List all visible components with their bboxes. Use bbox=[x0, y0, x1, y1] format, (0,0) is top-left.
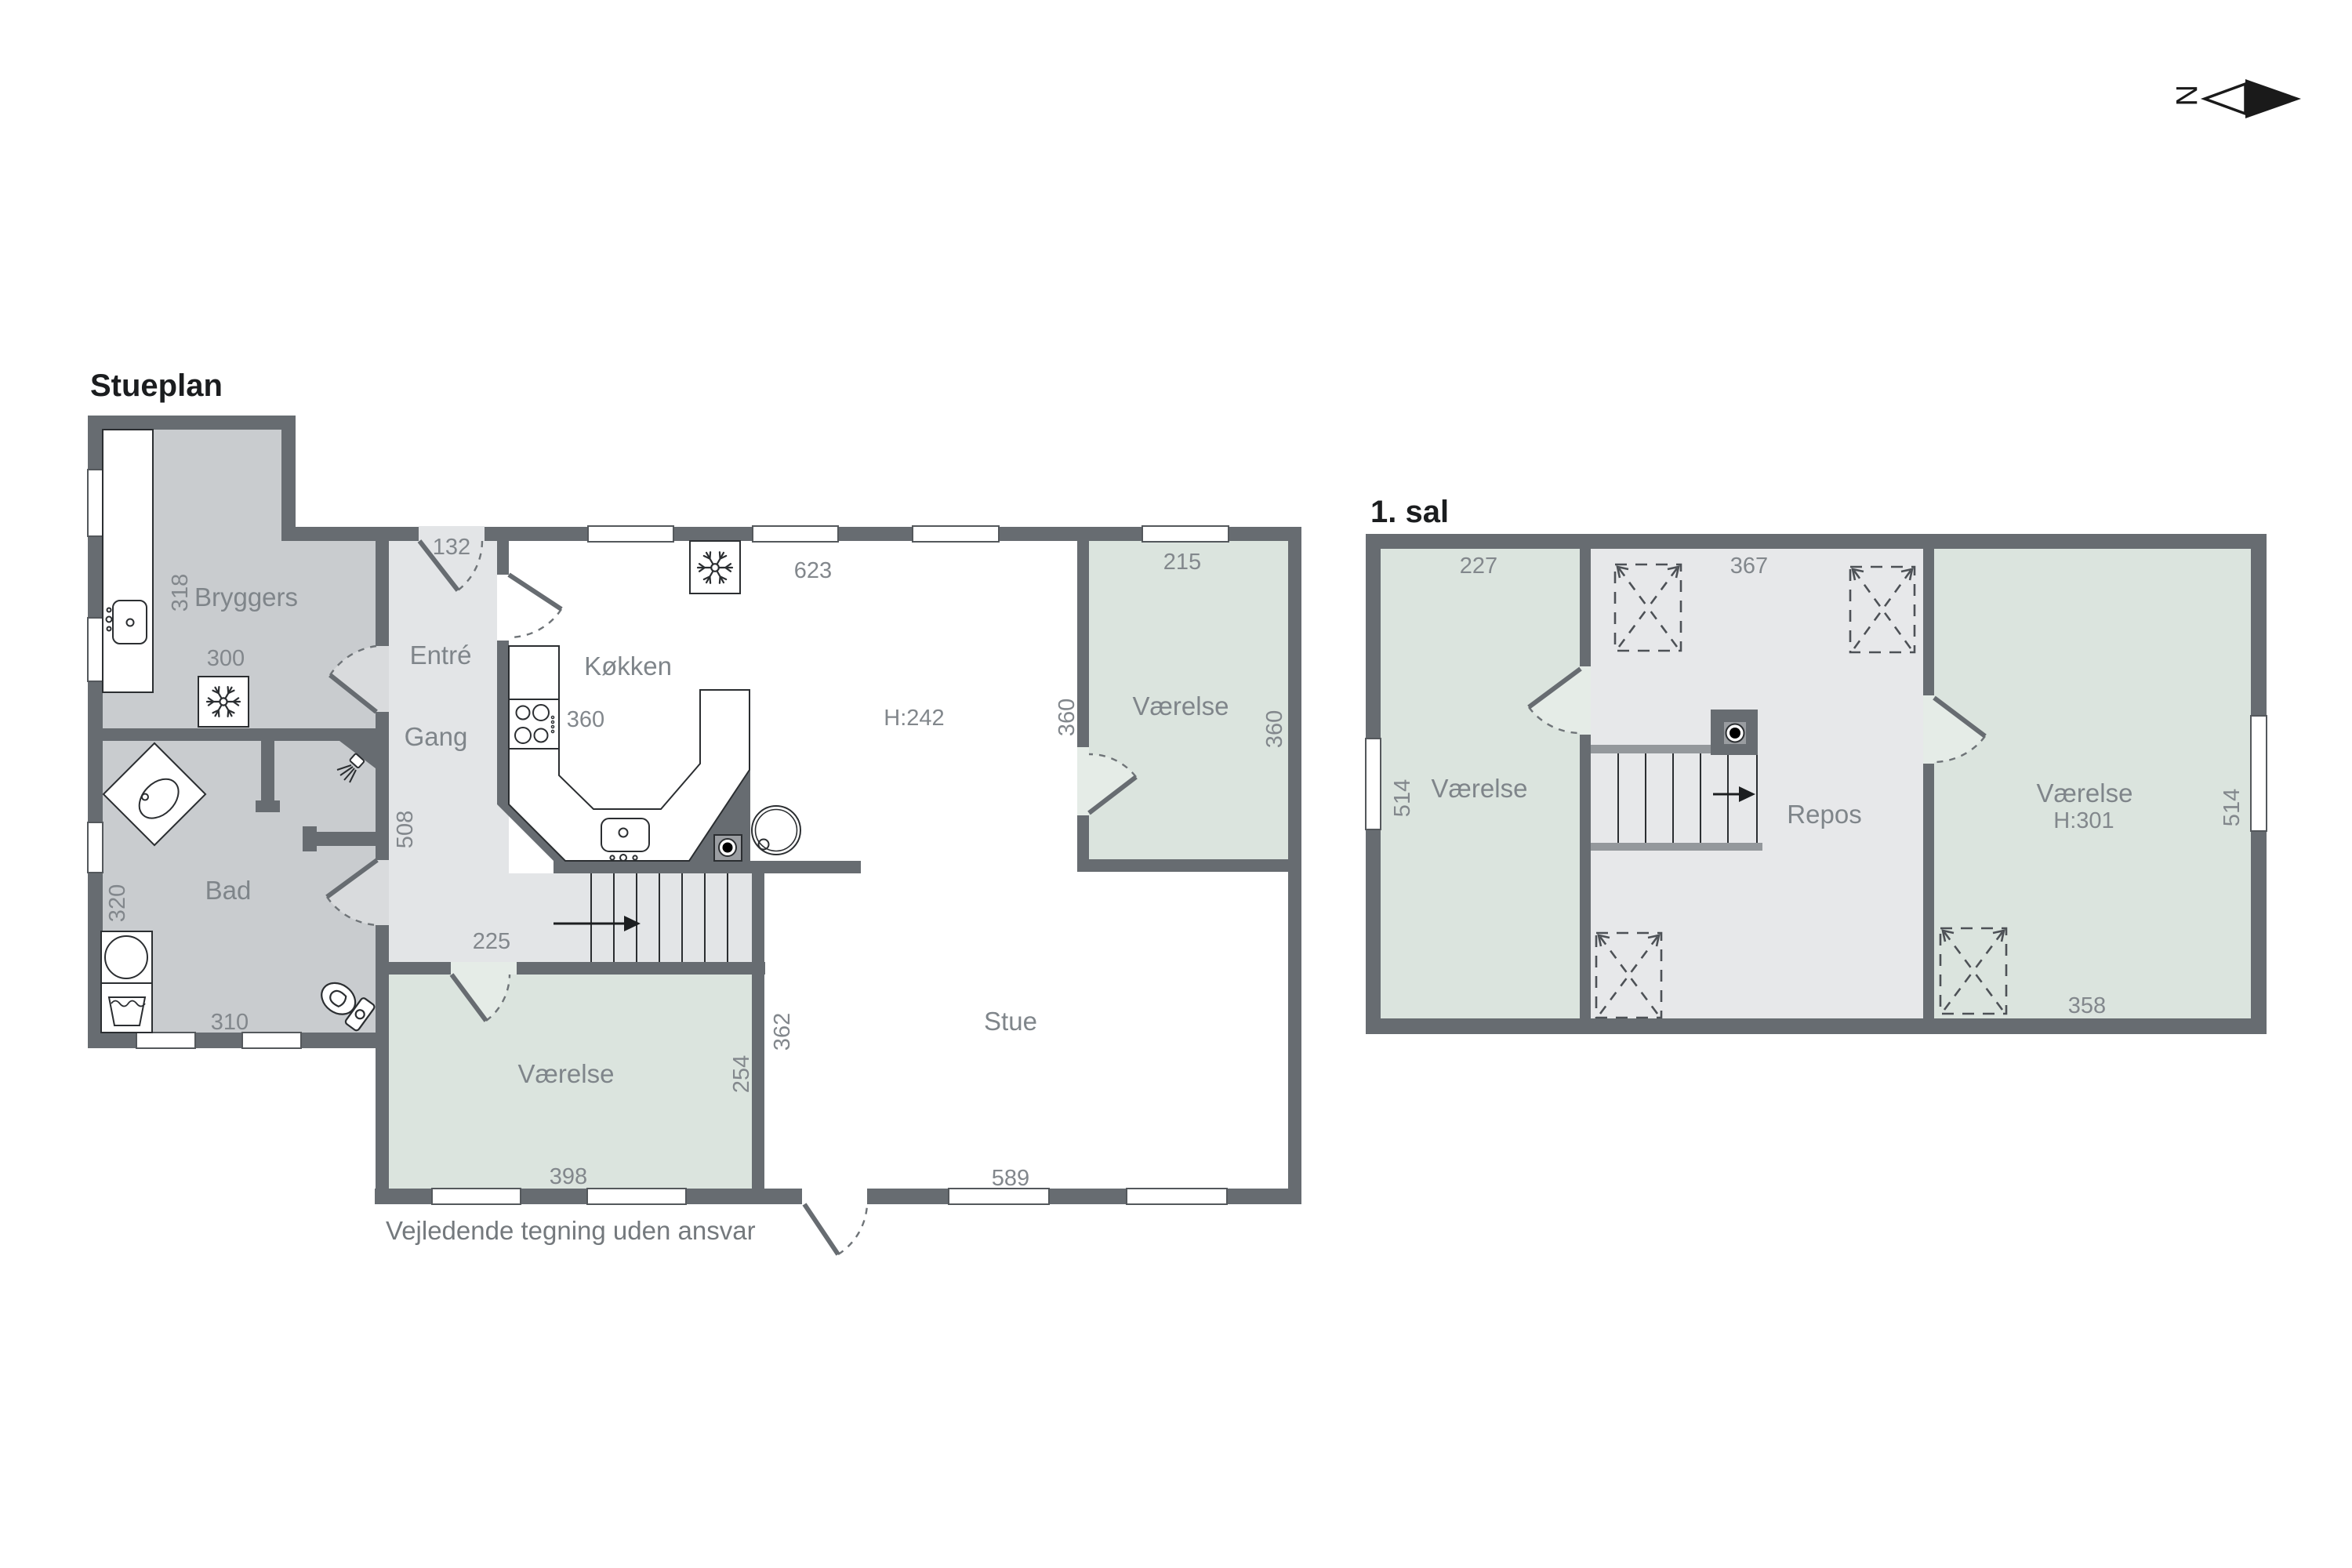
svg-text:508: 508 bbox=[393, 811, 418, 848]
svg-text:514: 514 bbox=[2220, 789, 2245, 826]
svg-text:Værelse: Værelse bbox=[2037, 779, 2133, 808]
svg-text:225: 225 bbox=[473, 929, 510, 954]
svg-text:Værelse: Værelse bbox=[1133, 691, 1229, 720]
svg-text:1. sal: 1. sal bbox=[1370, 495, 1449, 529]
svg-text:Stue: Stue bbox=[984, 1007, 1037, 1036]
svg-text:514: 514 bbox=[1390, 779, 1415, 817]
svg-text:320: 320 bbox=[105, 884, 130, 922]
svg-text:Bad: Bad bbox=[205, 876, 252, 905]
svg-text:N: N bbox=[2169, 85, 2202, 106]
svg-text:362: 362 bbox=[770, 1013, 795, 1051]
svg-text:318: 318 bbox=[168, 574, 193, 612]
svg-text:Bryggers: Bryggers bbox=[194, 583, 298, 612]
svg-text:589: 589 bbox=[992, 1166, 1029, 1191]
svg-text:300: 300 bbox=[207, 646, 245, 671]
svg-text:Køkken: Køkken bbox=[584, 652, 672, 681]
svg-text:H:242: H:242 bbox=[884, 706, 944, 731]
svg-text:254: 254 bbox=[729, 1055, 754, 1093]
svg-text:Vejledende tegning uden ansvar: Vejledende tegning uden ansvar bbox=[386, 1216, 756, 1245]
svg-text:Værelse: Værelse bbox=[1432, 774, 1528, 803]
svg-text:358: 358 bbox=[2068, 993, 2106, 1018]
svg-text:360: 360 bbox=[1262, 710, 1287, 748]
svg-text:623: 623 bbox=[794, 558, 832, 583]
svg-text:Gang: Gang bbox=[405, 722, 468, 751]
svg-text:360: 360 bbox=[1054, 699, 1080, 736]
svg-text:227: 227 bbox=[1460, 554, 1497, 579]
svg-text:Stueplan: Stueplan bbox=[90, 368, 223, 403]
svg-text:398: 398 bbox=[550, 1164, 587, 1189]
svg-text:Entré: Entré bbox=[410, 641, 472, 670]
svg-text:132: 132 bbox=[433, 535, 470, 560]
svg-text:Repos: Repos bbox=[1787, 800, 1861, 829]
svg-text:367: 367 bbox=[1730, 554, 1768, 579]
svg-text:H:301: H:301 bbox=[2053, 808, 2114, 833]
svg-text:Værelse: Værelse bbox=[518, 1059, 615, 1088]
svg-text:215: 215 bbox=[1163, 550, 1201, 575]
svg-text:360: 360 bbox=[567, 707, 604, 732]
svg-text:310: 310 bbox=[211, 1010, 249, 1035]
